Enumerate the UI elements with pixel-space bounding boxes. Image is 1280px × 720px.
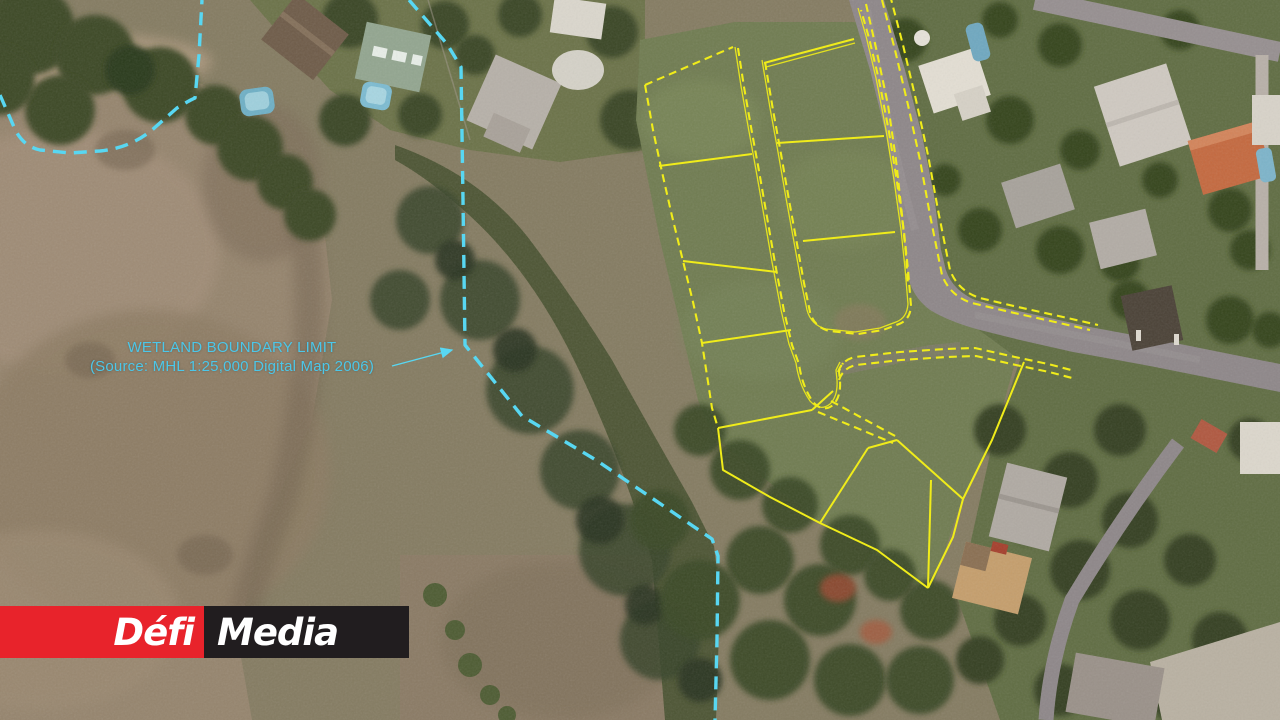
wetland-label-source: (Source: MHL 1:25,000 Digital Map 2006)	[64, 357, 400, 376]
defi-logo-primary-text: Défi	[113, 611, 194, 654]
wetland-label-title: WETLAND BOUNDARY LIMIT	[64, 338, 400, 357]
defi-media-logo: Défi Media	[0, 606, 409, 658]
defi-logo-secondary-text: Media	[217, 611, 338, 654]
defi-logo-primary-box: Défi	[0, 606, 204, 658]
aerial-map-screenshot: WETLAND BOUNDARY LIMIT (Source: MHL 1:25…	[0, 0, 1280, 720]
defi-logo-secondary-box: Media	[204, 606, 409, 658]
wetland-label: WETLAND BOUNDARY LIMIT (Source: MHL 1:25…	[64, 338, 400, 376]
